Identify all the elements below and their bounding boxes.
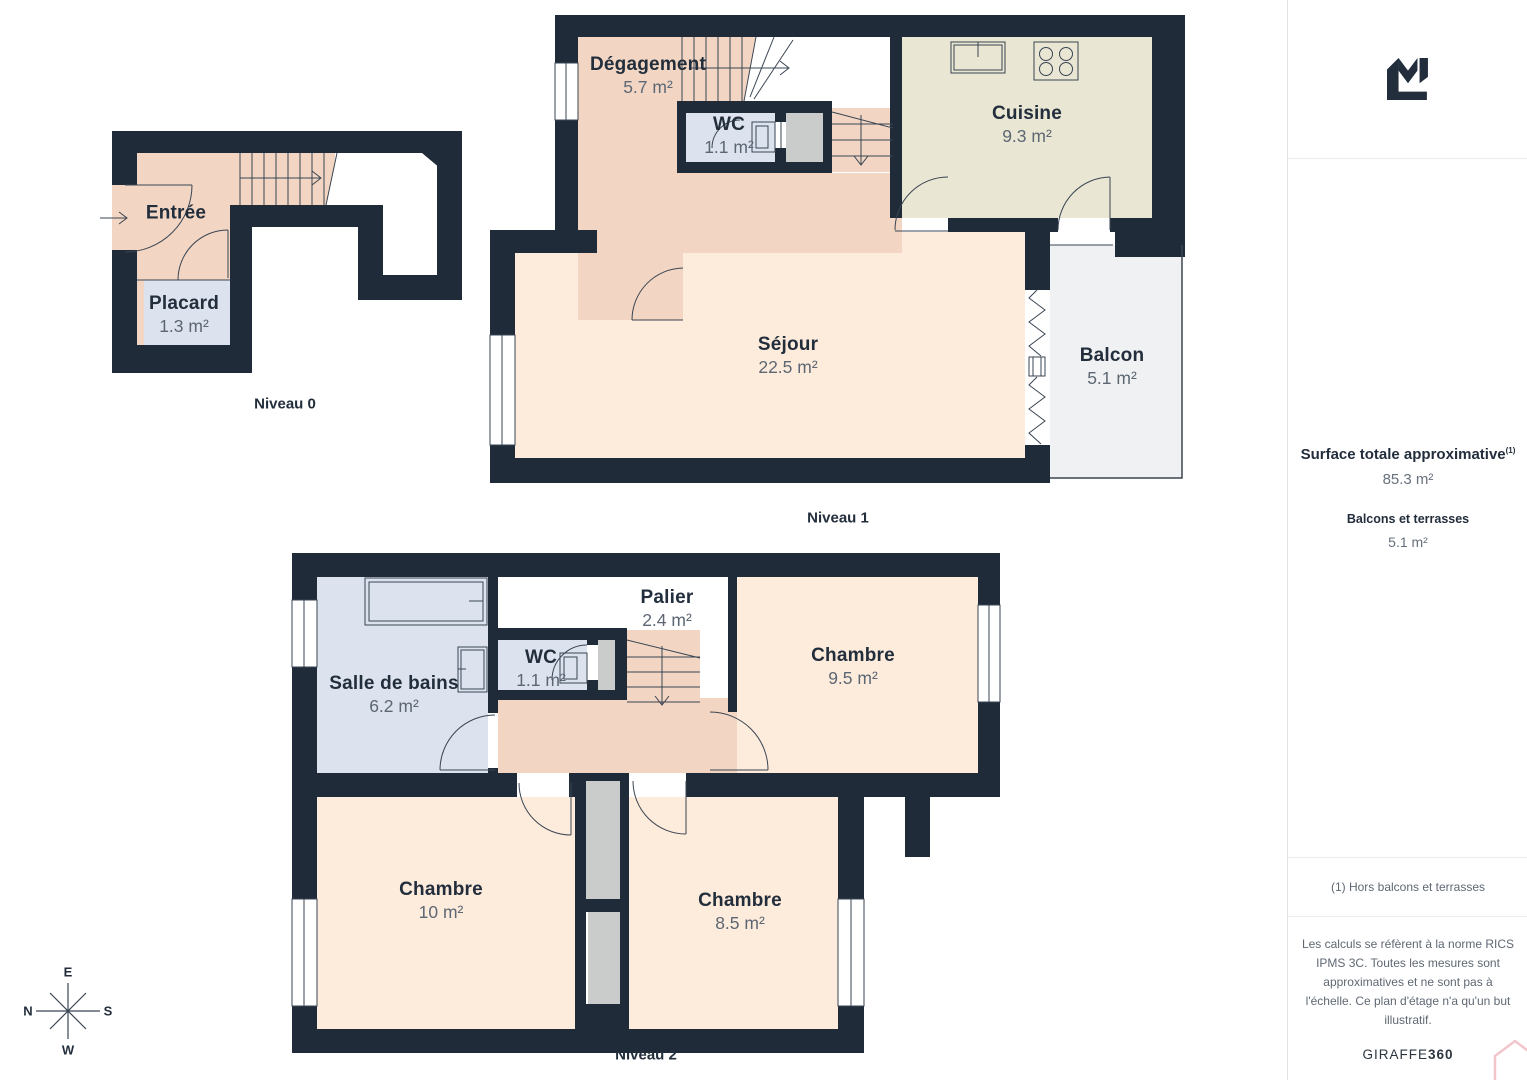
legal-block: Les calculs se réfèrent à la norme RICS … (1300, 935, 1516, 1064)
house-watermark-icon (1485, 1028, 1527, 1080)
disclaimer-text: Les calculs se réfèrent à la norme RICS … (1300, 935, 1516, 1030)
info-sidebar: Surface totale approximative(1) 85.3 m² … (1287, 0, 1527, 1080)
floor-plan-niveau-0 (100, 120, 480, 410)
surface-total-value: 85.3 m² (1288, 471, 1527, 488)
compass-label-bottom: W (62, 1043, 74, 1058)
room-label-cuisine: Cuisine 9.3 m² (992, 102, 1062, 148)
compass-label-top: E (64, 965, 73, 980)
room-label-chambre-1: Chambre 9.5 m² (811, 644, 895, 690)
giraffe360-brand: GIRAFFE360 (1300, 1045, 1516, 1064)
compass-label-right: S (104, 1004, 113, 1019)
room-label-placard: Placard 1.3 m² (149, 292, 219, 338)
room-label-balcon: Balcon 5.1 m² (1080, 344, 1145, 390)
brand-logo-container (1288, 0, 1527, 159)
caption-niveau-0: Niveau 0 (254, 396, 316, 413)
surface-total-title: Surface totale approximative(1) (1288, 446, 1527, 463)
footnote: (1) Hors balcons et terrasses (1288, 857, 1527, 917)
room-label-degagement: Dégagement 5.7 m² (590, 53, 706, 99)
room-label-salle-de-bains: Salle de bains 6.2 m² (329, 672, 459, 718)
surface-summary: Surface totale approximative(1) 85.3 m² … (1288, 446, 1527, 550)
room-label-sejour: Séjour 22.5 m² (758, 333, 818, 379)
room-label-wc-n1: WC 1.1 m² (704, 113, 754, 159)
caption-niveau-1: Niveau 1 (807, 510, 869, 527)
room-label-entree: Entrée (146, 201, 206, 224)
room-label-chambre-3: Chambre 8.5 m² (698, 889, 782, 935)
caption-niveau-2: Niveau 2 (615, 1047, 677, 1064)
brand-logo-icon (1387, 58, 1429, 100)
room-label-chambre-2: Chambre 10 m² (399, 878, 483, 924)
room-label-palier: Palier 2.4 m² (641, 586, 694, 632)
balconies-label: Balcons et terrasses (1288, 512, 1527, 526)
balconies-value: 5.1 m² (1288, 534, 1527, 550)
room-label-wc-n2: WC 1.1 m² (516, 646, 566, 692)
compass-label-left: N (23, 1004, 32, 1019)
floor-plan-page: Entrée Placard 1.3 m² Dégagement 5.7 m² … (0, 0, 1527, 1080)
floor-plan-niveau-1 (480, 10, 1200, 530)
